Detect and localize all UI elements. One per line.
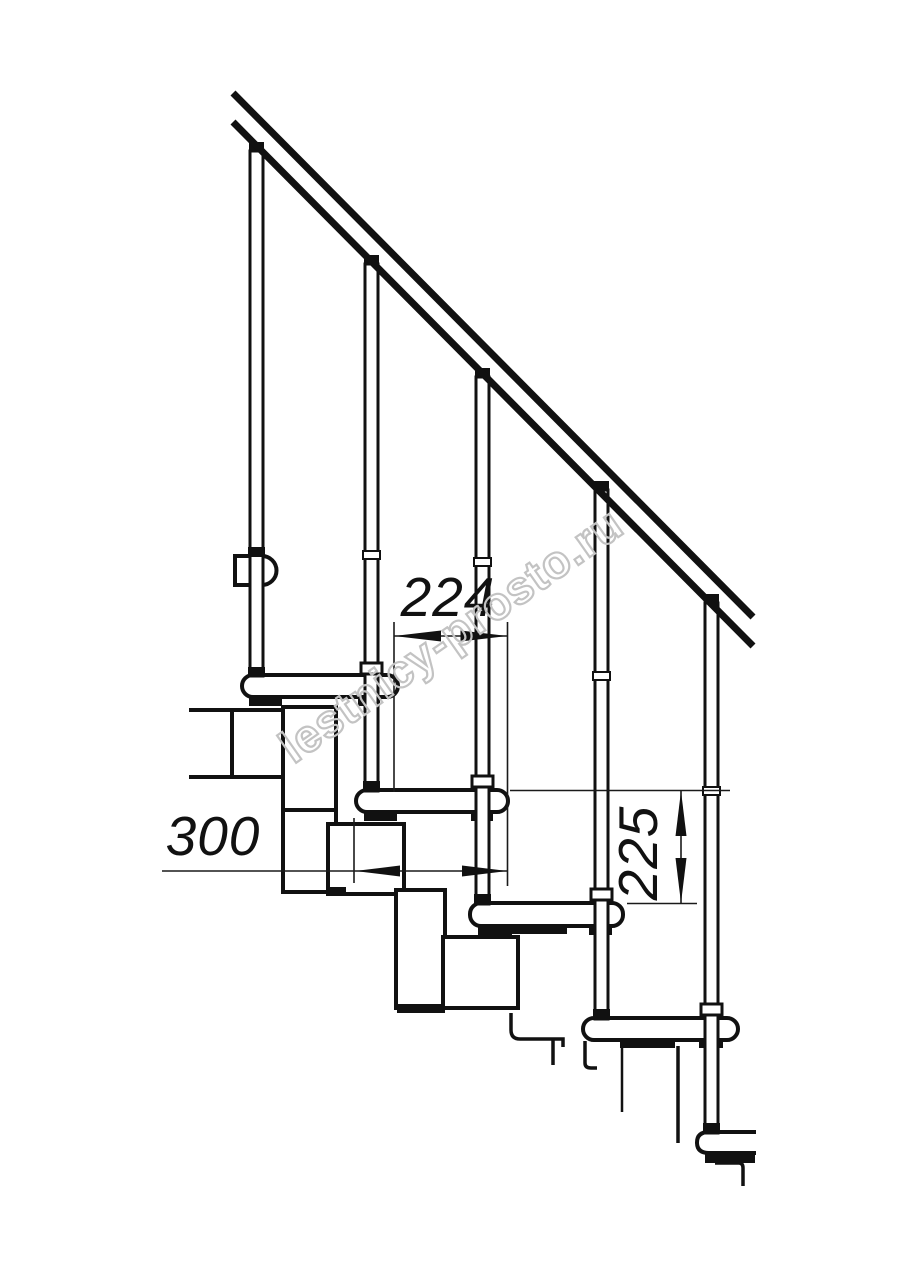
handrail bbox=[233, 93, 753, 646]
baluster-1-body bbox=[250, 151, 263, 676]
baluster-2-foot bbox=[363, 781, 380, 790]
baluster-5-body bbox=[705, 603, 718, 1133]
baluster-5-foot bbox=[703, 1123, 720, 1132]
baluster-1 bbox=[250, 151, 263, 676]
dim-225-arrow-up bbox=[676, 791, 687, 836]
baluster-4-joint bbox=[593, 672, 610, 680]
module-cut-under-tread-4 bbox=[585, 1041, 597, 1068]
support-modules bbox=[189, 707, 743, 1186]
baluster-4-foot bbox=[593, 1009, 610, 1018]
module-square-3 bbox=[443, 937, 518, 1008]
dim-225-arrow-down bbox=[676, 858, 687, 903]
module-square-2 bbox=[328, 824, 404, 894]
baluster-3-foot bbox=[474, 894, 491, 903]
module-column-2 bbox=[396, 890, 445, 1008]
baluster-3-joint bbox=[474, 558, 491, 566]
dim-225-label: 225 bbox=[607, 806, 669, 902]
baluster-3-collar bbox=[472, 776, 493, 787]
baluster-2-joint bbox=[363, 551, 380, 559]
staircase-drawing-sheet: 224 300 225 lestnicy-prosto.ru bbox=[0, 0, 914, 1280]
baluster-5 bbox=[701, 603, 722, 1133]
module-cut-arm bbox=[189, 710, 285, 777]
baluster-5-collar bbox=[701, 1004, 722, 1015]
module-cut-under-square-3 bbox=[511, 1013, 563, 1065]
baluster-1-pill-lock bbox=[248, 547, 265, 557]
dimension-225: 225 bbox=[510, 791, 730, 904]
staircase-drawing: 224 300 225 lestnicy-prosto.ru bbox=[0, 0, 914, 1280]
tread-5-cut bbox=[697, 1132, 756, 1153]
baluster-4 bbox=[591, 490, 612, 1019]
watermark-text: lestnicy-prosto.ru bbox=[269, 497, 632, 773]
baluster-4-body bbox=[595, 490, 608, 1019]
baluster-1-foot bbox=[248, 667, 265, 676]
module-cut-under-tread-5 bbox=[715, 1163, 743, 1186]
handrail-top-edge bbox=[233, 93, 753, 617]
dim-300-label: 300 bbox=[166, 805, 261, 867]
